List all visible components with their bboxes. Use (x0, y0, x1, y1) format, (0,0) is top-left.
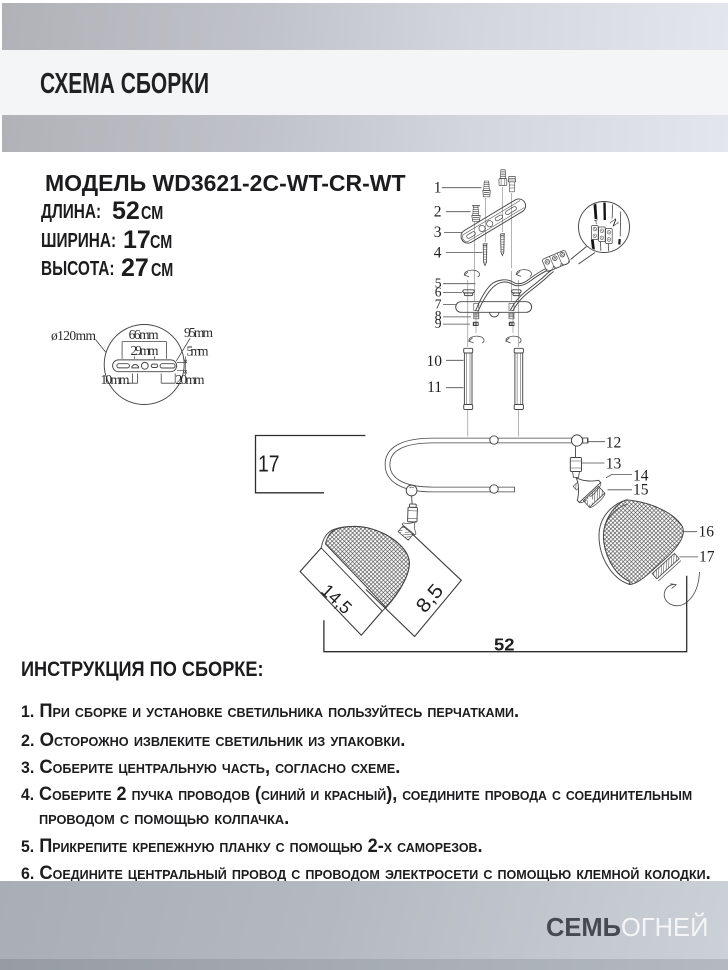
svg-text:52: 52 (494, 635, 515, 655)
svg-text:14,5: 14,5 (317, 580, 356, 618)
svg-text:17: 17 (258, 451, 280, 477)
svg-text:8,5: 8,5 (412, 580, 448, 617)
